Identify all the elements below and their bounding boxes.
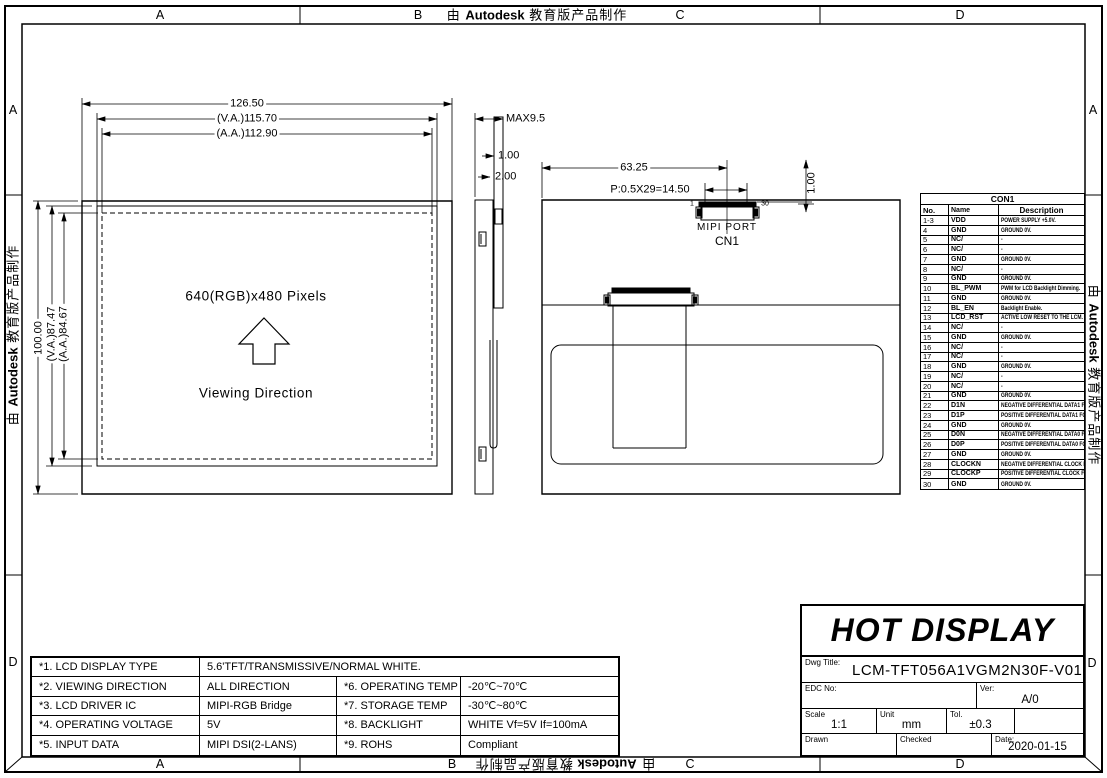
cad-drawing-page: A B 由 Autodesk 教育版产品制作 C D A B 由 Autodes… [0,0,1107,778]
con1-pin-row: 6NC/- [921,245,1084,255]
pin-name: GND [949,479,999,489]
fpc-connector-bar [612,288,690,293]
dwg-title-row: Dwg Title: LCM-TFT056A1VGM2N30F-V01 [802,657,1083,683]
projection-symbol-cell [1015,709,1083,733]
con1-rows: 1-3VDDPOWER SUPPLY +5.0V.4GNDGROUND 0V.5… [921,216,1084,489]
con1-pin-row: 16NC/- [921,343,1084,353]
con1-pin-row: 21GNDGROUND 0V. [921,392,1084,402]
scale-label: Scale [805,710,825,719]
pin-no: 29 [921,470,949,479]
pin-description: - [999,236,1084,245]
drawn-label: Drawn [805,735,828,744]
con1-pin-row: 25D0NNEGATIVE DIFFERENTIAL DATA0 FOR DSI… [921,431,1084,441]
fpc-connector-body [608,293,694,306]
watermark-right: 由 Autodesk 教育版产品制作 [1088,285,1101,466]
spec-cell: *3. LCD DRIVER IC [32,697,200,716]
watermark-suffix: 教育版产品制作 [6,245,21,343]
pin-name: NC/ [949,382,999,391]
spec-cell: Compliant [461,736,618,755]
con1-pin-row: 5NC/- [921,236,1084,246]
edc-row: EDC No: Ver: A/0 [802,683,1083,709]
pin-name: NC/ [949,323,999,332]
zone-label-bottom-b: B [448,758,456,771]
pin-no: 11 [921,294,949,303]
edc-cell: EDC No: [802,683,977,708]
watermark-prefix: 由 [6,411,21,425]
spec-cell: 5V [200,716,337,735]
resolution-label: 640(RGB)x480 Pixels [185,289,326,303]
con1-pin-row: 7GNDGROUND 0V. [921,255,1084,265]
pin-description: GROUND 0V. [999,333,1084,342]
pin-description: - [999,245,1084,254]
pin-description: - [999,353,1084,362]
pin-name: GND [949,333,999,342]
zone-label-bottom-a: A [156,758,164,771]
unit-label: Unit [880,710,894,719]
drawn-cell: Drawn [802,734,897,755]
watermark-brand: Autodesk [577,757,636,772]
con1-pin-row: 17NC/- [921,353,1084,363]
watermark-bottom: 由 Autodesk 教育版产品制作 [475,758,656,771]
pin-name: GND [949,392,999,401]
pin-description: GROUND 0V. [999,255,1084,264]
dwg-title-label: Dwg Title: [805,658,840,667]
pin-name: GND [949,362,999,371]
watermark-brand: Autodesk [465,8,524,23]
pin-name: NC/ [949,353,999,362]
con1-pin-row: 23D1PPOSITIVE DIFFERENTIAL DATA1 FOR DSI… [921,411,1084,421]
dim-aa-height: (A.A.)84.67 [59,304,70,364]
zone-label-top-a: A [156,9,164,22]
con1-pin-row: 20NC/- [921,382,1084,392]
watermark-suffix: 教育版产品制作 [475,757,573,772]
ver-cell: Ver: A/0 [977,683,1083,708]
pin-description: - [999,382,1084,391]
dim-side-2: 2.00 [495,172,516,183]
pin-name: NC/ [949,245,999,254]
tol-value: ±0.3 [947,719,1014,731]
scale-value: 1:1 [802,719,876,731]
pin-name: CLOCKP [949,470,999,479]
pin-description: ACTIVE LOW RESET TO THE LCM. [999,314,1084,323]
cn1-connector-body [701,207,754,220]
watermark-top: 由 Autodesk 教育版产品制作 [447,9,628,22]
pin-no: 28 [921,460,949,469]
back-view-fpc-tail [613,305,686,448]
dim-va-width: (V.A.)115.70 [215,114,279,125]
con1-pin-row: 28CLOCKNNEGATIVE DIFFERENTIAL CLOCK FOR … [921,460,1084,470]
pin-no: 6 [921,245,949,254]
spec-cell: *5. INPUT DATA [32,736,200,755]
con1-pin-row: 10BL_PWMPWM for LCD Backlight Dimming. [921,284,1084,294]
pin-30-label: 30 [761,201,769,208]
zone-label-bottom-d: D [955,758,964,771]
dwg-title-value: LCM-TFT056A1VGM2N30F-V01 [852,662,1079,679]
dim-outline-height: 100.00 [34,319,45,357]
pin-description: GROUND 0V. [999,294,1084,303]
zone-label-left-a: A [9,104,17,117]
ver-label: Ver: [980,684,994,693]
pin-name: BL_EN [949,304,999,313]
date-value: 2020-01-15 [992,741,1083,753]
dim-max-thickness: MAX9.5 [506,114,545,125]
pin-name: NC/ [949,236,999,245]
pin-description: POSITIVE DIFFERENTIAL DATA0 FOR DSI. [999,440,1084,449]
con1-pin-row: 8NC/- [921,265,1084,275]
watermark-suffix: 教育版产品制作 [529,8,627,23]
con1-pin-row: 15GNDGROUND 0V. [921,333,1084,343]
pin-description: GROUND 0V. [999,450,1084,459]
spec-cell: 5.6'TFT/TRANSMISSIVE/NORMAL WHITE. [200,658,618,677]
cn1-label: CN1 [715,235,739,247]
back-view-recess [551,345,883,464]
pin-description: NEGATIVE DIFFERENTIAL DATA1 FOR DSI. [999,401,1084,410]
pin-name: GND [949,226,999,235]
pin-description: GROUND 0V. [999,421,1084,430]
pin-no: 9 [921,275,949,284]
pin-no: 10 [921,284,949,293]
con1-pin-row: 27GNDGROUND 0V. [921,450,1084,460]
zone-label-bottom-c: C [685,758,694,771]
pin-no: 18 [921,362,949,371]
spec-table: *1. LCD DISPLAY TYPE 5.6'TFT/TRANSMISSIV… [30,656,620,757]
pin-description: - [999,323,1084,332]
con1-header-no: No. [921,205,949,215]
spec-cell: WHITE Vf=5V If=100mA [461,716,618,735]
pin-description: GROUND 0V. [999,392,1084,401]
con1-pin-row: 19NC/- [921,372,1084,382]
pin-no: 19 [921,372,949,381]
signature-row: Drawn Checked Date: 2020-01-15 [802,734,1083,755]
zone-label-top-c: C [675,9,684,22]
tol-cell: Tol. ±0.3 [947,709,1015,733]
pin-no: 23 [921,411,949,420]
ver-value: A/0 [977,694,1083,706]
con1-pin-row: 13LCD_RSTACTIVE LOW RESET TO THE LCM. [921,314,1084,324]
pin-no: 24 [921,421,949,430]
pin-name: GND [949,294,999,303]
spec-cell: MIPI DSI(2-LANS) [200,736,337,755]
zone-label-right-a: A [1089,104,1097,117]
pin-name: CLOCKN [949,460,999,469]
pin-no: 20 [921,382,949,391]
unit-value: mm [877,719,946,731]
pin-no: 26 [921,440,949,449]
checked-label: Checked [900,735,932,744]
con1-pin-row: 24GNDGROUND 0V. [921,421,1084,431]
pin-description: NEGATIVE DIFFERENTIAL CLOCK FOR DSI. [999,460,1084,469]
spec-cell: MIPI-RGB Bridge [200,697,337,716]
scale-row: Scale 1:1 Unit mm Tol. ±0.3 [802,709,1083,734]
pin-no: 16 [921,343,949,352]
spec-cell: -20℃~70℃ [461,677,618,696]
pin-no: 22 [921,401,949,410]
tol-label: Tol. [950,710,962,719]
watermark-suffix: 教育版产品制作 [1087,367,1102,465]
pin-description: GROUND 0V. [999,275,1084,284]
watermark-brand: Autodesk [6,347,21,406]
con1-header-name: Name [949,205,999,215]
pin-description: GROUND 0V. [999,362,1084,371]
spec-cell: *8. BACKLIGHT [337,716,461,735]
pin-no: 4 [921,226,949,235]
pin-name: VDD [949,216,999,225]
pin-name: D0N [949,431,999,440]
spec-cell: *6. OPERATING TEMP [337,677,461,696]
con1-pin-table: CON1 No. Name Description 1-3VDDPOWER SU… [920,193,1085,490]
pin-name: GND [949,255,999,264]
title-block: HOT DISPLAY Dwg Title: LCM-TFT056A1VGM2N… [800,604,1085,757]
pin-description: GROUND 0V. [999,226,1084,235]
watermark-prefix: 由 [1087,285,1102,299]
spec-cell: *2. VIEWING DIRECTION [32,677,200,696]
pin-name: D0P [949,440,999,449]
pin-description: POSITIVE DIFFERENTIAL DATA1 FOR DSI. [999,411,1084,420]
con1-pin-row: 4GNDGROUND 0V. [921,226,1084,236]
viewing-direction-arrow-icon [239,318,289,364]
zone-label-right-d: D [1087,657,1096,670]
mipi-port-label: MIPI PORT [697,223,757,233]
con1-pin-row: 22D1NNEGATIVE DIFFERENTIAL DATA1 FOR DSI… [921,401,1084,411]
pin-no: 15 [921,333,949,342]
pin-no: 27 [921,450,949,459]
dim-connector-offset: 63.25 [618,163,650,174]
spec-cell: *1. LCD DISPLAY TYPE [32,658,200,677]
con1-pin-row: 9GNDGROUND 0V. [921,275,1084,285]
con1-table-header: No. Name Description [921,205,1084,216]
spec-cell: *7. STORAGE TEMP [337,697,461,716]
zone-label-left-d: D [8,656,17,669]
dim-va-height: (V.A.)87.47 [47,305,58,364]
pin-no: 30 [921,479,949,489]
unit-cell: Unit mm [877,709,947,733]
cn1-connector-bar [699,202,756,207]
pin-name: GND [949,450,999,459]
pin-no: 21 [921,392,949,401]
dim-side-1: 1.00 [498,151,519,162]
pin-description: Backlight Enable. [999,304,1084,313]
pin-name: D1P [949,411,999,420]
con1-pin-row: 12BL_ENBacklight Enable. [921,304,1084,314]
con1-pin-row: 30GNDGROUND 0V. [921,479,1084,489]
spec-cell: ALL DIRECTION [200,677,337,696]
spec-cell: *9. ROHS [337,736,461,755]
pin-name: LCD_RST [949,314,999,323]
pin-no: 13 [921,314,949,323]
pin-description: NEGATIVE DIFFERENTIAL DATA0 FOR DSI. [999,431,1084,440]
pin-description: - [999,372,1084,381]
pin-no: 17 [921,353,949,362]
con1-table-title: CON1 [921,194,1084,205]
pin-name: GND [949,421,999,430]
pin-description: PWM for LCD Backlight Dimming. [999,284,1084,293]
watermark-prefix: 由 [447,8,461,23]
pin-no: 5 [921,236,949,245]
pin-name: GND [949,275,999,284]
con1-pin-row: 26D0PPOSITIVE DIFFERENTIAL DATA0 FOR DSI… [921,440,1084,450]
con1-pin-row: 11GNDGROUND 0V. [921,294,1084,304]
pin-description: GROUND 0V. [999,479,1084,489]
dim-pin-pitch: P:0.5X29=14.50 [608,185,691,196]
company-name: HOT DISPLAY [802,606,1083,657]
pin-1-label: 1 [690,201,694,208]
watermark-brand: Autodesk [1087,303,1102,362]
con1-pin-row: 18GNDGROUND 0V. [921,362,1084,372]
pin-no: 12 [921,304,949,313]
pin-no: 8 [921,265,949,274]
pin-description: POWER SUPPLY +5.0V. [999,216,1084,225]
pin-no: 1-3 [921,216,949,225]
con1-pin-row: 29CLOCKPPOSITIVE DIFFERENTIAL CLOCK FOR … [921,470,1084,480]
pin-name: NC/ [949,265,999,274]
watermark-prefix: 由 [641,757,655,772]
con1-header-description: Description [999,205,1084,215]
pin-name: D1N [949,401,999,410]
spec-cell: *4. OPERATING VOLTAGE [32,716,200,735]
zone-label-top-b: B [414,9,422,22]
date-cell: Date: 2020-01-15 [992,734,1083,755]
dim-connector-inset: 1.00 [807,170,818,195]
pin-name: NC/ [949,372,999,381]
pin-name: NC/ [949,343,999,352]
pin-no: 25 [921,431,949,440]
spec-cell: -30℃~80℃ [461,697,618,716]
con1-pin-row: 1-3VDDPOWER SUPPLY +5.0V. [921,216,1084,226]
dim-outline-width: 126.50 [228,99,266,110]
zone-label-top-d: D [955,9,964,22]
pin-description: POSITIVE DIFFERENTIAL CLOCK FOR DSI. [999,470,1084,479]
viewing-direction-label: Viewing Direction [199,386,313,400]
checked-cell: Checked [897,734,992,755]
edc-label: EDC No: [805,684,837,693]
watermark-left: 由 Autodesk 教育版产品制作 [7,245,20,426]
pin-description: - [999,343,1084,352]
pin-name: BL_PWM [949,284,999,293]
pin-description: - [999,265,1084,274]
con1-pin-row: 14NC/- [921,323,1084,333]
pin-no: 14 [921,323,949,332]
dim-aa-width: (A.A.)112.90 [215,129,280,140]
scale-cell: Scale 1:1 [802,709,877,733]
pin-no: 7 [921,255,949,264]
